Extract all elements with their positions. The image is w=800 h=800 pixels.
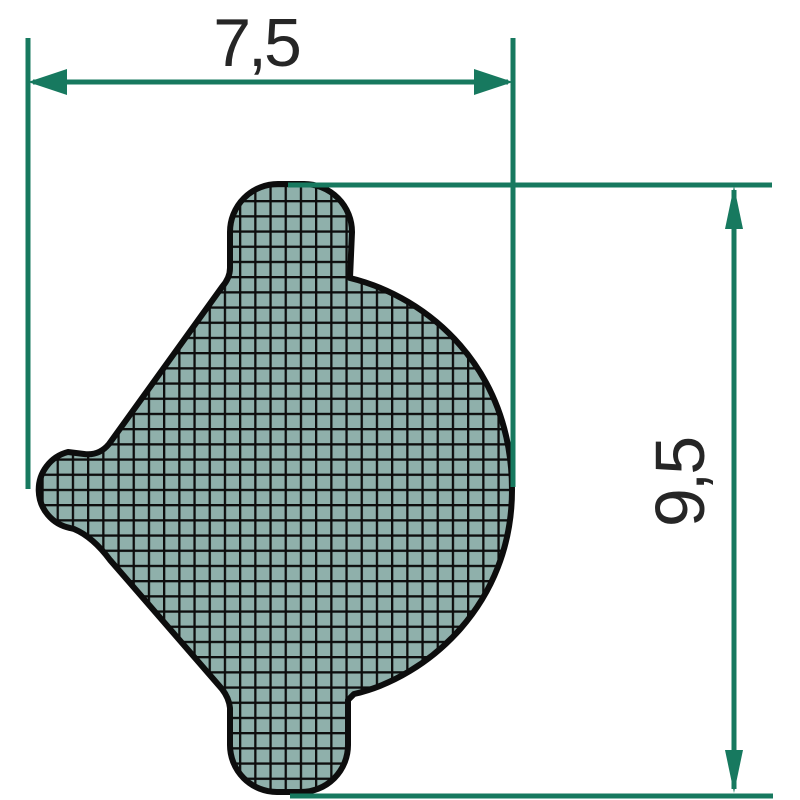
drawing-canvas: 7,5 9,5 (0, 0, 800, 800)
width-dimension-label: 7,5 (213, 5, 299, 81)
technical-drawing: 7,5 9,5 (0, 0, 800, 800)
height-dimension-label: 9,5 (641, 439, 719, 527)
